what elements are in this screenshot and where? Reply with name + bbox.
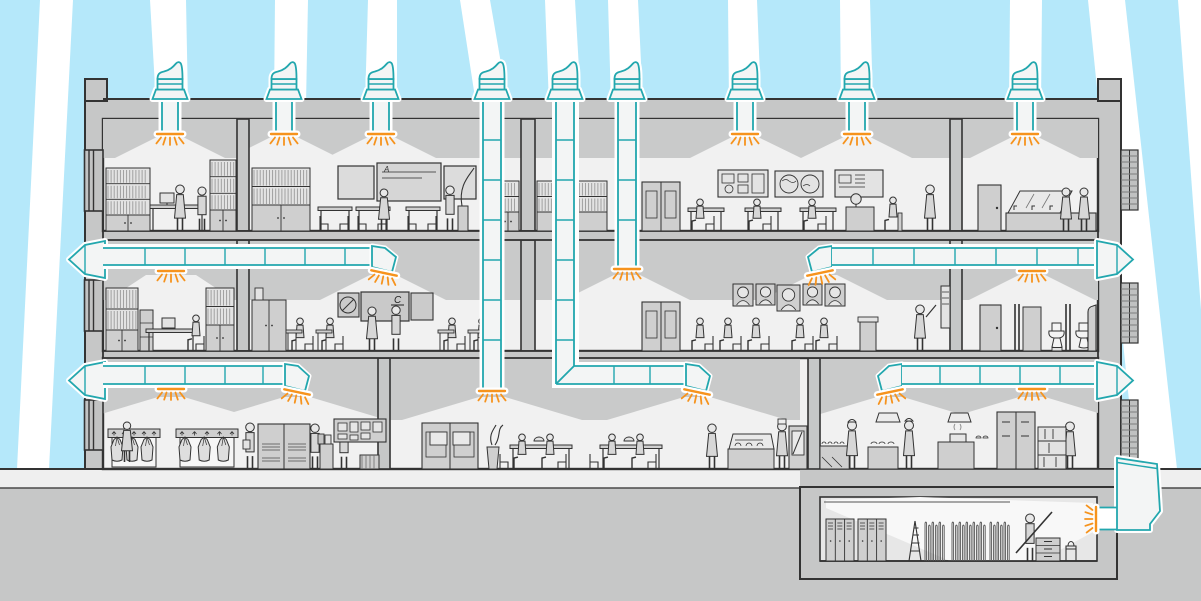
svg-text:A: A: [383, 165, 389, 174]
svg-text:C: C: [394, 295, 402, 306]
